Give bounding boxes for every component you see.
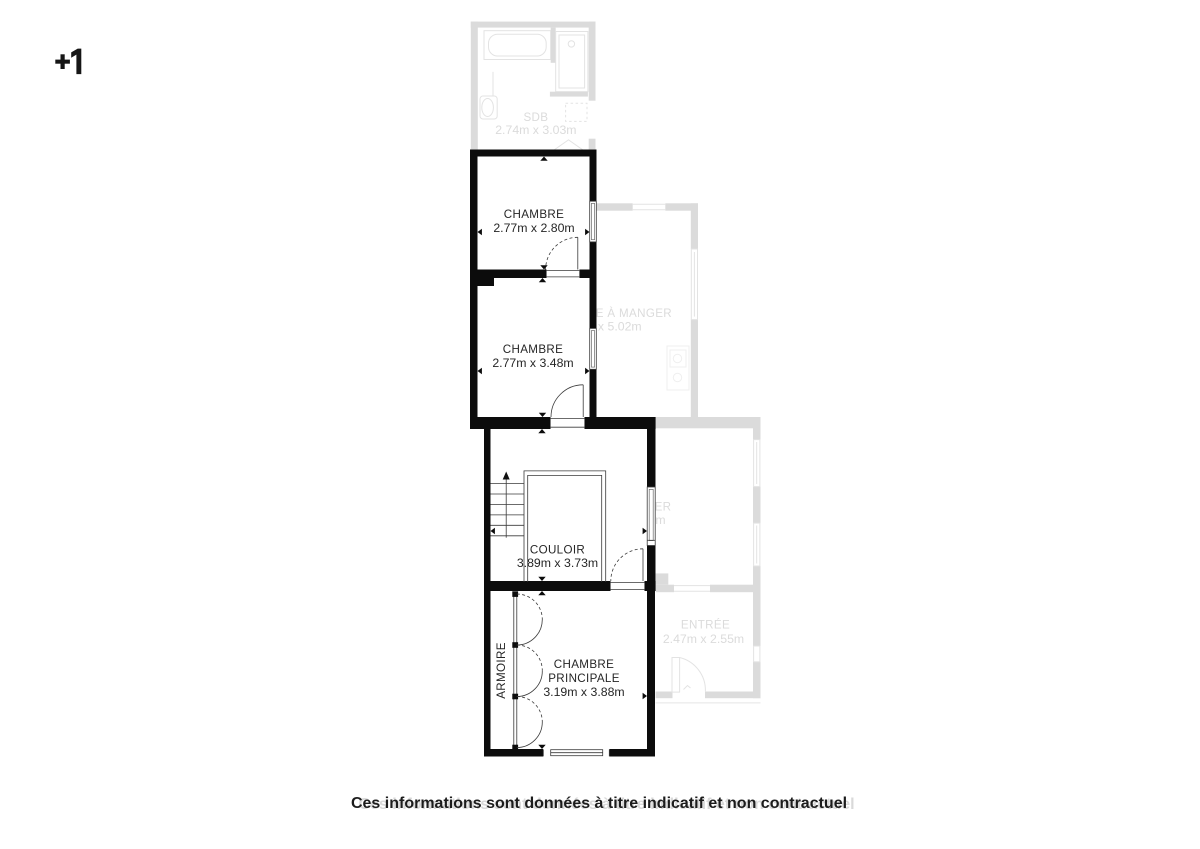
svg-text:3.89m x 3.73m: 3.89m x 3.73m xyxy=(517,556,598,570)
svg-text:2.77m x 3.48m: 2.77m x 3.48m xyxy=(492,356,573,370)
svg-text:PRINCIPALE: PRINCIPALE xyxy=(548,672,620,685)
svg-text:Ces informations sont données: Ces informations sont données à titre in… xyxy=(351,795,847,812)
svg-text:2.77m x 2.80m: 2.77m x 2.80m xyxy=(493,221,574,235)
svg-text:ARMOIRE: ARMOIRE xyxy=(495,642,508,699)
svg-text:SDB: SDB xyxy=(523,111,548,124)
svg-text:2.47m x 2.55m: 2.47m x 2.55m xyxy=(663,632,744,646)
svg-text:COULOIR: COULOIR xyxy=(530,543,585,556)
svg-text:2.74m x 3.03m: 2.74m x 3.03m xyxy=(495,123,576,137)
svg-text:CHAMBRE: CHAMBRE xyxy=(504,208,564,221)
svg-text:ENTRÉE: ENTRÉE xyxy=(681,618,730,631)
svg-text:CHAMBRE: CHAMBRE xyxy=(503,343,563,356)
svg-text:CHAMBRE: CHAMBRE xyxy=(554,658,614,671)
svg-text:3.19m x 3.88m: 3.19m x 3.88m xyxy=(543,685,624,699)
